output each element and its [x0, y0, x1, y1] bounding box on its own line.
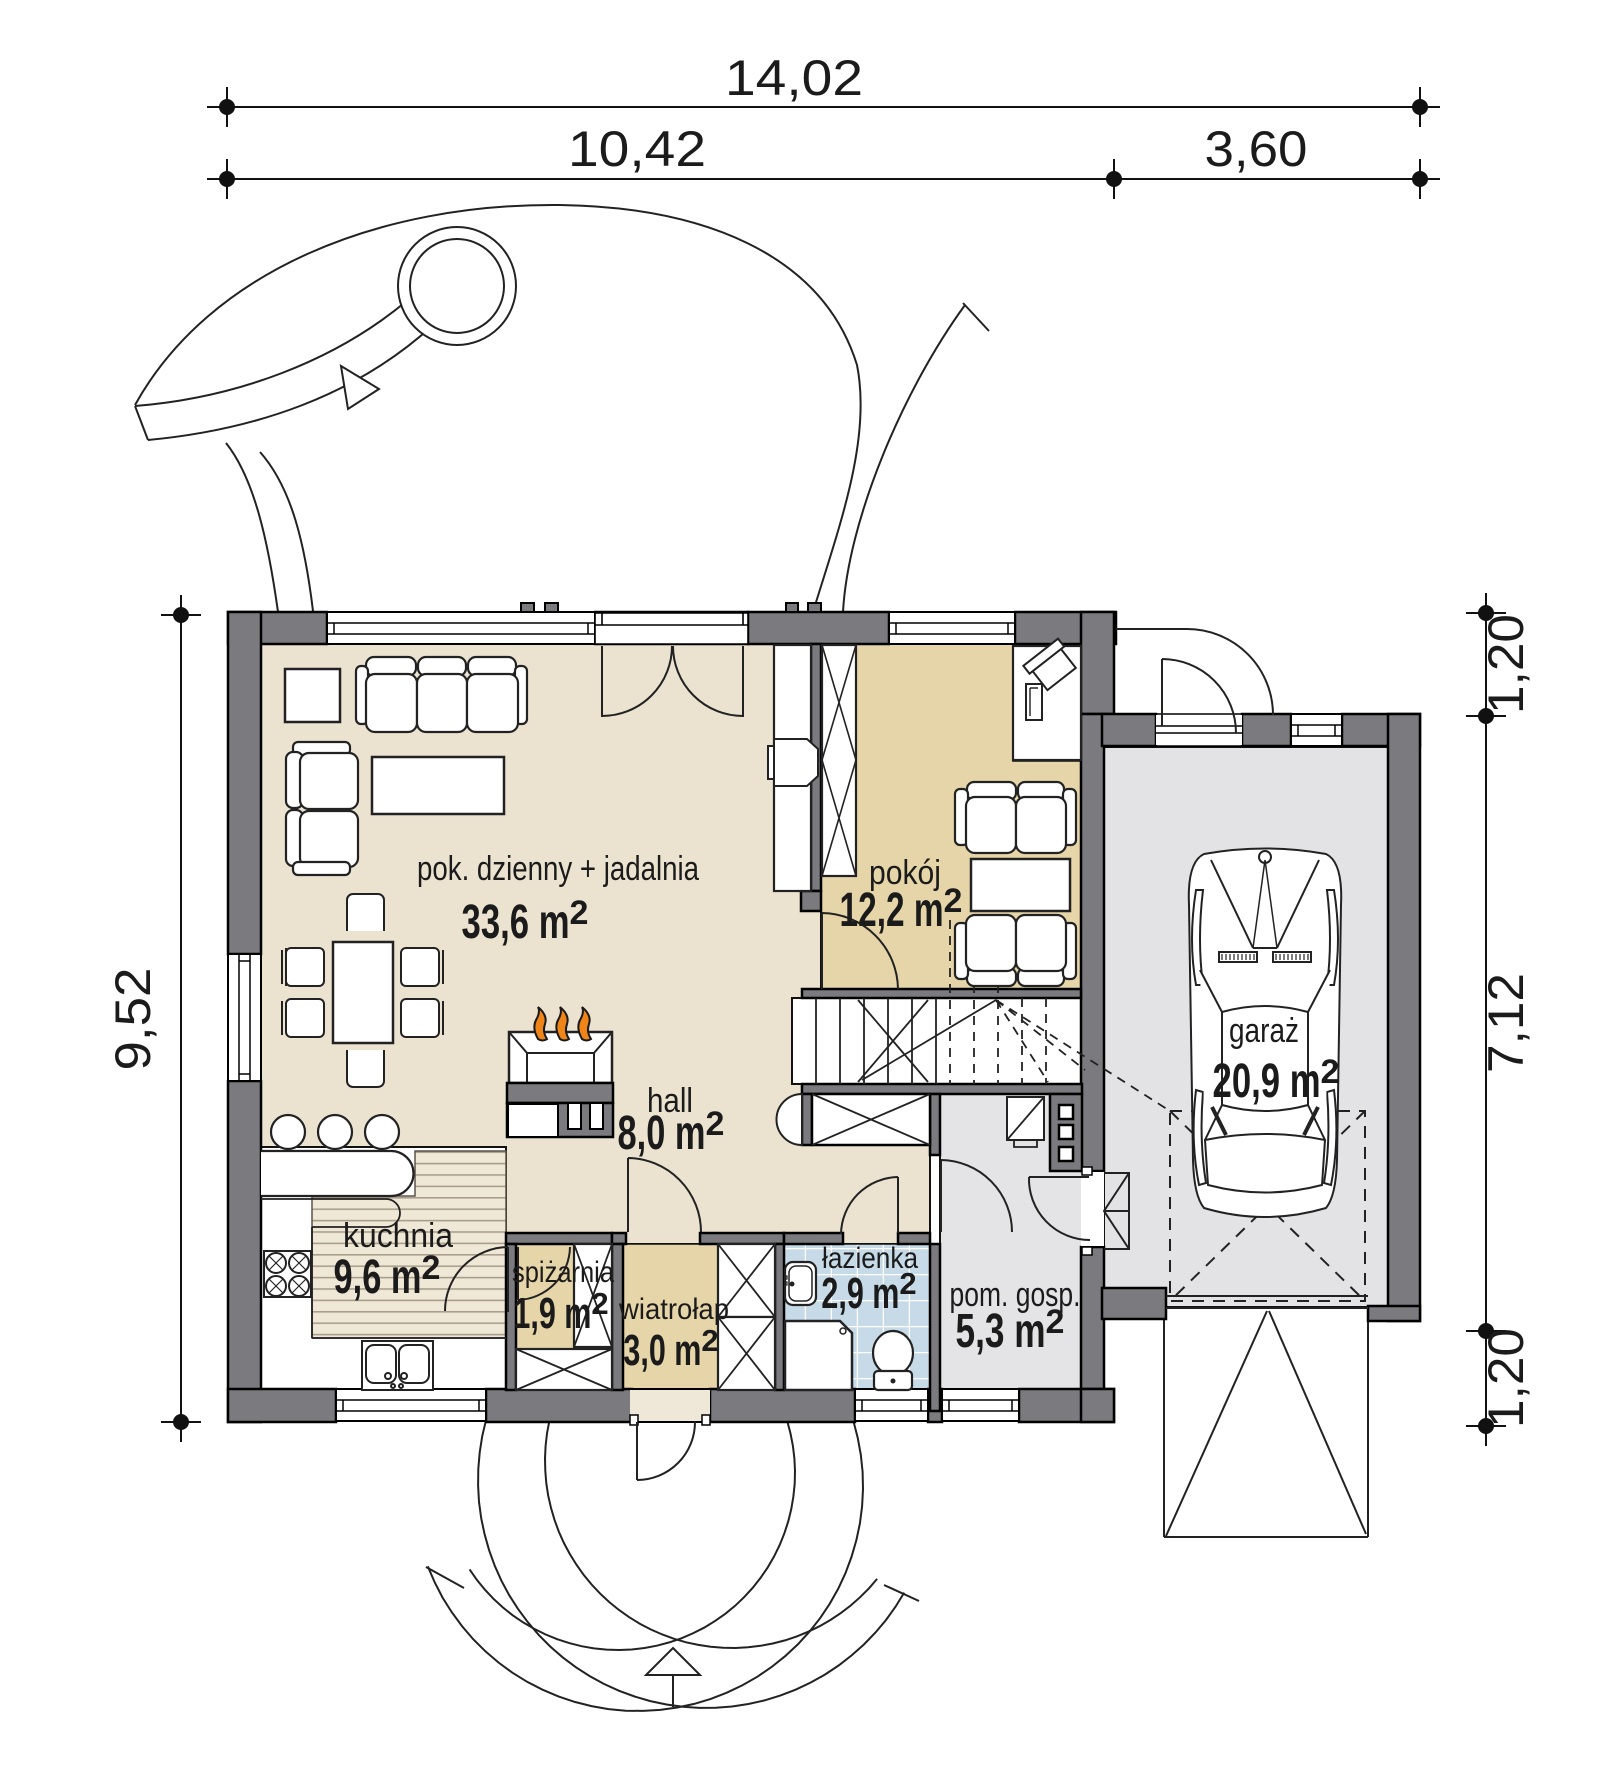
- svg-text:spiżarnia: spiżarnia: [512, 1256, 614, 1289]
- svg-text:33,6 m2: 33,6 m2: [462, 894, 589, 949]
- svg-text:14,02: 14,02: [725, 50, 863, 106]
- svg-text:wiatrołap: wiatrołap: [618, 1293, 729, 1326]
- svg-text:3,60: 3,60: [1205, 121, 1308, 177]
- svg-text:garaż: garaż: [1229, 1012, 1299, 1050]
- svg-text:20,9 m2: 20,9 m2: [1213, 1053, 1340, 1108]
- svg-text:7,12: 7,12: [1478, 973, 1534, 1073]
- svg-text:1,20: 1,20: [1478, 614, 1534, 714]
- svg-text:10,42: 10,42: [568, 121, 706, 177]
- svg-text:1,20: 1,20: [1478, 1328, 1534, 1428]
- svg-text:pok. dzienny + jadalnia: pok. dzienny + jadalnia: [417, 850, 699, 888]
- svg-text:9,52: 9,52: [105, 968, 161, 1071]
